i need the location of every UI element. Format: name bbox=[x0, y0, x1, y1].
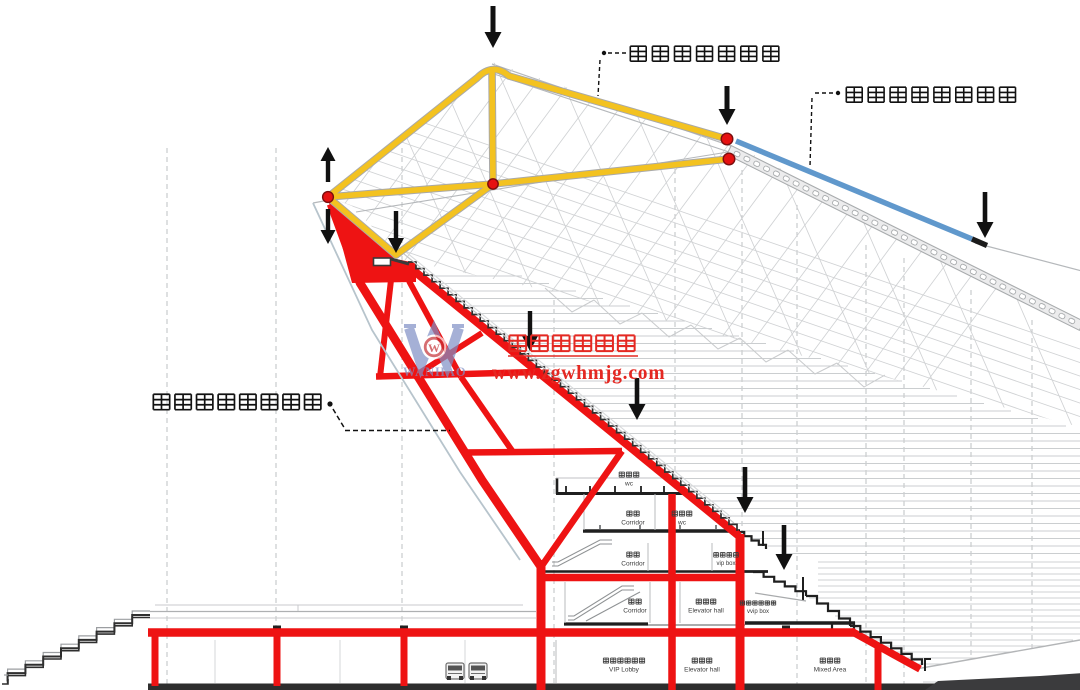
svg-text:Corridor: Corridor bbox=[621, 561, 645, 568]
svg-text:www.zgwhmjg.com: www.zgwhmjg.com bbox=[492, 363, 665, 384]
svg-text:W: W bbox=[428, 341, 440, 355]
svg-text:vip box: vip box bbox=[716, 561, 735, 567]
svg-text:wc: wc bbox=[677, 520, 687, 527]
svg-text:Elevator hall: Elevator hall bbox=[684, 667, 720, 674]
svg-text:vvip box: vvip box bbox=[747, 609, 769, 615]
svg-text:VIP Lobby: VIP Lobby bbox=[609, 667, 640, 674]
svg-text:WANHAO: WANHAO bbox=[403, 365, 467, 379]
svg-text:Corridor: Corridor bbox=[621, 520, 645, 527]
svg-text:Elevator hall: Elevator hall bbox=[688, 608, 724, 615]
svg-text:wc: wc bbox=[624, 481, 634, 488]
svg-text:Mixed Area: Mixed Area bbox=[814, 667, 847, 674]
svg-text:Corridor: Corridor bbox=[623, 608, 647, 615]
